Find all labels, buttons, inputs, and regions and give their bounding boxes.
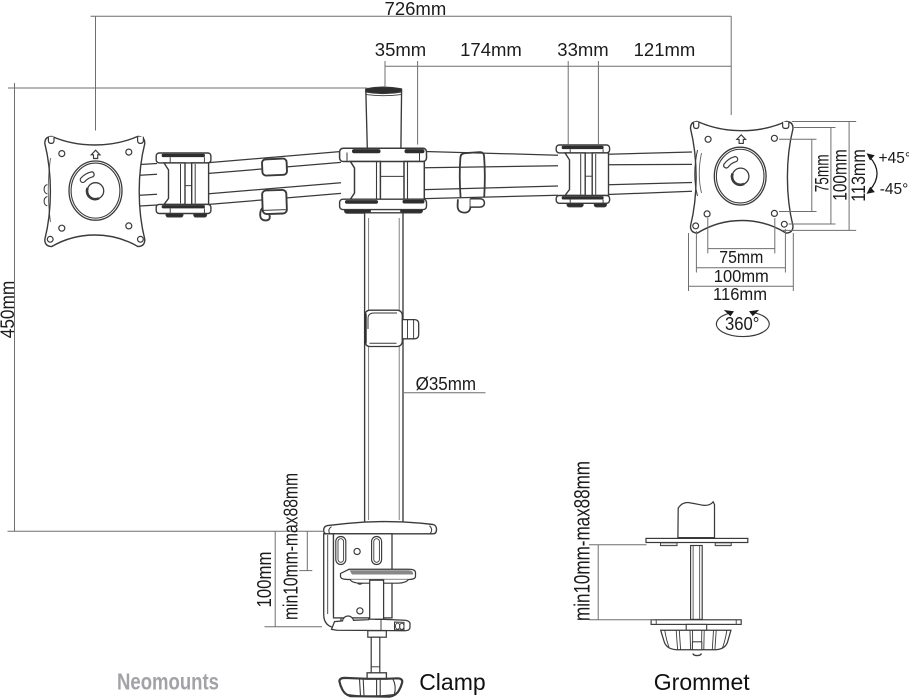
svg-text:Clamp: Clamp xyxy=(419,669,485,695)
svg-text:726mm: 726mm xyxy=(385,0,447,19)
svg-text:113mm: 113mm xyxy=(848,149,870,202)
svg-text:Neomounts: Neomounts xyxy=(117,668,219,694)
svg-text:174mm: 174mm xyxy=(460,39,522,60)
svg-text:360°: 360° xyxy=(725,313,760,334)
svg-text:35mm: 35mm xyxy=(375,39,426,60)
svg-text:75mm: 75mm xyxy=(719,247,763,267)
svg-text:100mm: 100mm xyxy=(714,266,769,286)
svg-text:Grommet: Grommet xyxy=(654,669,750,695)
svg-text:+45°: +45° xyxy=(879,150,909,167)
svg-text:450mm: 450mm xyxy=(0,281,19,339)
svg-text:121mm: 121mm xyxy=(634,39,696,60)
svg-text:100mm: 100mm xyxy=(254,552,276,608)
svg-text:-45°: -45° xyxy=(880,181,909,198)
svg-text:Ø35mm: Ø35mm xyxy=(416,373,477,394)
svg-text:min10mm-max88mm: min10mm-max88mm xyxy=(280,473,302,620)
svg-text:116mm: 116mm xyxy=(713,284,767,304)
svg-text:min10mm-max88mm: min10mm-max88mm xyxy=(570,461,595,621)
svg-text:33mm: 33mm xyxy=(557,39,608,60)
